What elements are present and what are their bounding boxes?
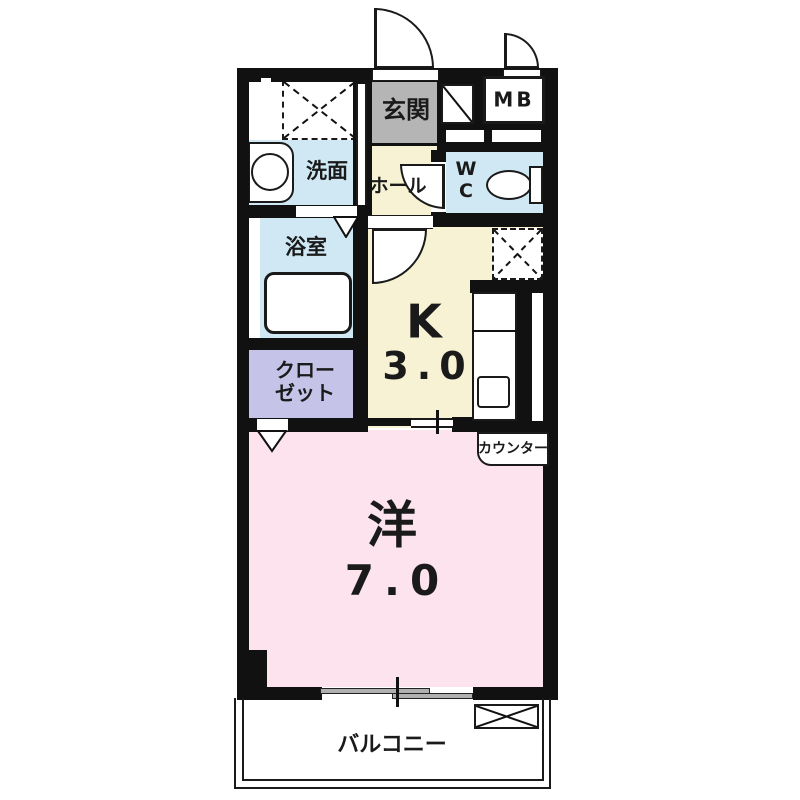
entrance-door-sill (372, 69, 439, 81)
balcony-equipment-box (474, 704, 539, 729)
wall-toilet-bottom (431, 213, 545, 227)
shoe-cabinet (441, 84, 474, 124)
wall-right (543, 68, 558, 700)
toilet-bowl-icon (486, 170, 532, 200)
kitchen-room-opening (411, 418, 453, 428)
fridge-space-cross-icon (494, 230, 541, 278)
label-meter-box: MB (493, 89, 534, 112)
label-counter: カウンター (478, 441, 548, 457)
kitchen-room-tick (436, 410, 439, 434)
label-closet-line1: クロー (275, 359, 335, 382)
shoe-cabinet-diagonal-icon (443, 86, 472, 122)
label-kitchen-size: 3.0 (382, 345, 473, 389)
bathroom-entry-triangle-icon (333, 216, 359, 238)
wall-left (237, 68, 249, 700)
partition-double-line (356, 84, 367, 215)
label-western-room: 洋 (367, 497, 417, 555)
pipe-space-strip (532, 293, 543, 421)
label-closet-line2: ゼット (275, 382, 335, 405)
wall-left-step (249, 650, 267, 687)
label-kitchen: K (406, 296, 442, 349)
wall-bath-column (353, 205, 368, 430)
label-toilet-line1: W (456, 159, 477, 181)
closet-entry-triangle-icon (257, 430, 288, 453)
label-balcony: バルコニー (337, 732, 447, 757)
meterbox-door-arc (504, 33, 539, 68)
washer-space-cross-icon (284, 82, 355, 138)
label-toilet-line2: C (456, 181, 477, 203)
hall-kitchen-sill (368, 215, 433, 229)
label-washroom: 洗面 (306, 159, 348, 183)
kitchen-sink-icon (477, 376, 510, 408)
entrance-step-line (368, 143, 440, 146)
kitchen-counter-divider (472, 330, 517, 332)
fridge-space-box (492, 228, 543, 280)
label-toilet: W C (456, 159, 477, 203)
toilet-tank-icon (529, 166, 543, 204)
bathtub-icon (264, 272, 352, 334)
washbasin-bowl-icon (251, 153, 289, 191)
entrance-door-arc (374, 8, 434, 68)
wall-slot (446, 130, 541, 142)
wall-kitchen-lintel (360, 418, 413, 426)
washer-space-box (282, 80, 357, 140)
floorplan-canvas: 玄関 MB 洗面 ホール W C 浴室 クロー ゼット K 3.0 カウンター … (0, 0, 800, 800)
label-hall: ホール (369, 176, 426, 198)
label-western-room-size: 7.0 (345, 557, 449, 605)
wall-bathroom-closet (237, 338, 360, 350)
label-bathroom: 浴室 (285, 235, 327, 259)
label-entrance: 玄関 (382, 97, 430, 125)
wall-counter-right (517, 293, 532, 421)
wall-slot-divider (484, 130, 492, 142)
label-closet: クロー ゼット (275, 359, 335, 405)
pipe-corner-mark-foot (250, 106, 271, 116)
balcony-equipment-cross-icon (476, 706, 537, 727)
